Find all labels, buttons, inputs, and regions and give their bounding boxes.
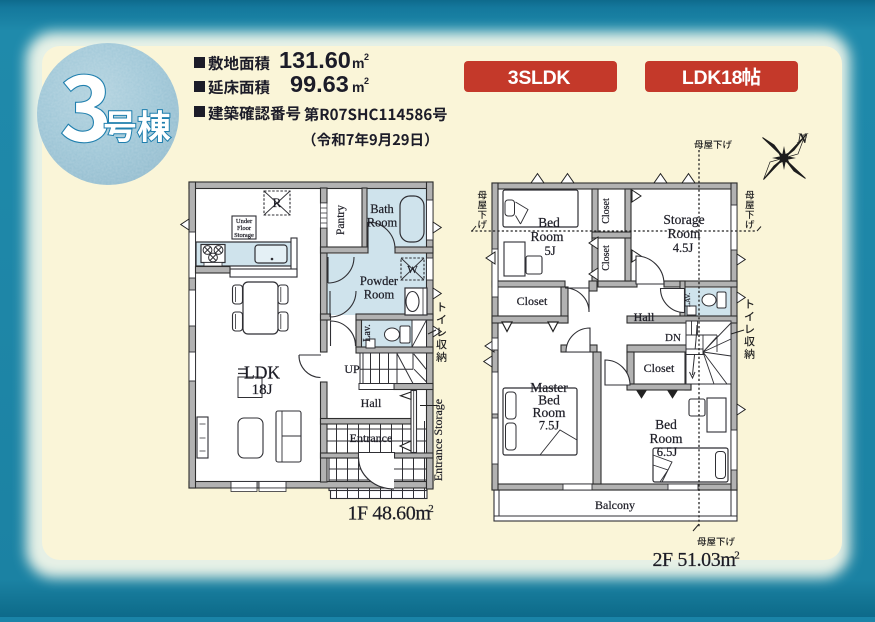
svg-text:Room: Room [667,226,701,241]
svg-text:m: m [352,55,364,71]
svg-text:Floor: Floor [237,225,252,232]
svg-text:2: 2 [734,550,740,562]
svg-text:Bed: Bed [655,417,677,432]
svg-text:1F 48.60m: 1F 48.60m [347,503,431,525]
svg-text:R: R [273,195,282,210]
svg-text:Entrance: Entrance [350,431,393,445]
svg-text:Closet: Closet [601,245,612,271]
svg-text:Room: Room [649,431,683,446]
svg-text:Balcony: Balcony [595,498,635,512]
svg-text:2: 2 [364,52,369,62]
svg-text:Closet: Closet [644,361,675,375]
svg-text:Storage: Storage [663,212,704,227]
svg-text:Lav.: Lav. [362,324,373,341]
svg-text:Pantry: Pantry [335,205,347,235]
svg-text:4.5J: 4.5J [673,241,694,255]
svg-text:Storage: Storage [234,232,254,239]
svg-text:DN: DN [665,332,681,344]
svg-text:Under: Under [236,218,253,225]
svg-text:Powder: Powder [360,274,399,288]
svg-text:5J: 5J [544,244,555,258]
svg-text:7.5J: 7.5J [539,419,560,433]
svg-text:Room: Room [364,288,395,302]
svg-text:N: N [796,131,809,147]
svg-text:Hall: Hall [634,310,655,324]
svg-text:Entrance Storage: Entrance Storage [431,399,445,481]
svg-text:UP: UP [344,362,360,376]
svg-text:W: W [407,264,418,276]
svg-text:2: 2 [428,503,434,515]
svg-text:LDK18: LDK18 [682,67,743,89]
svg-text:Bath: Bath [370,202,394,216]
svg-text:LDK: LDK [244,363,280,383]
svg-text:3SLDK: 3SLDK [508,67,571,89]
svg-text:Closet: Closet [517,294,548,308]
svg-text:Hall: Hall [361,396,382,410]
svg-text:2F 51.03m: 2F 51.03m [652,549,736,571]
svg-text:Bed: Bed [538,215,560,230]
svg-text:LAV.: LAV. [684,293,692,308]
svg-text:18J: 18J [252,382,273,398]
svg-text:99.63: 99.63 [290,71,349,97]
svg-text:131.60: 131.60 [279,47,351,73]
svg-text:2: 2 [364,76,369,86]
svg-text:Closet: Closet [601,198,612,224]
svg-text:m: m [352,79,364,95]
svg-text:6.5J: 6.5J [657,445,678,459]
svg-text:Room: Room [367,216,398,230]
